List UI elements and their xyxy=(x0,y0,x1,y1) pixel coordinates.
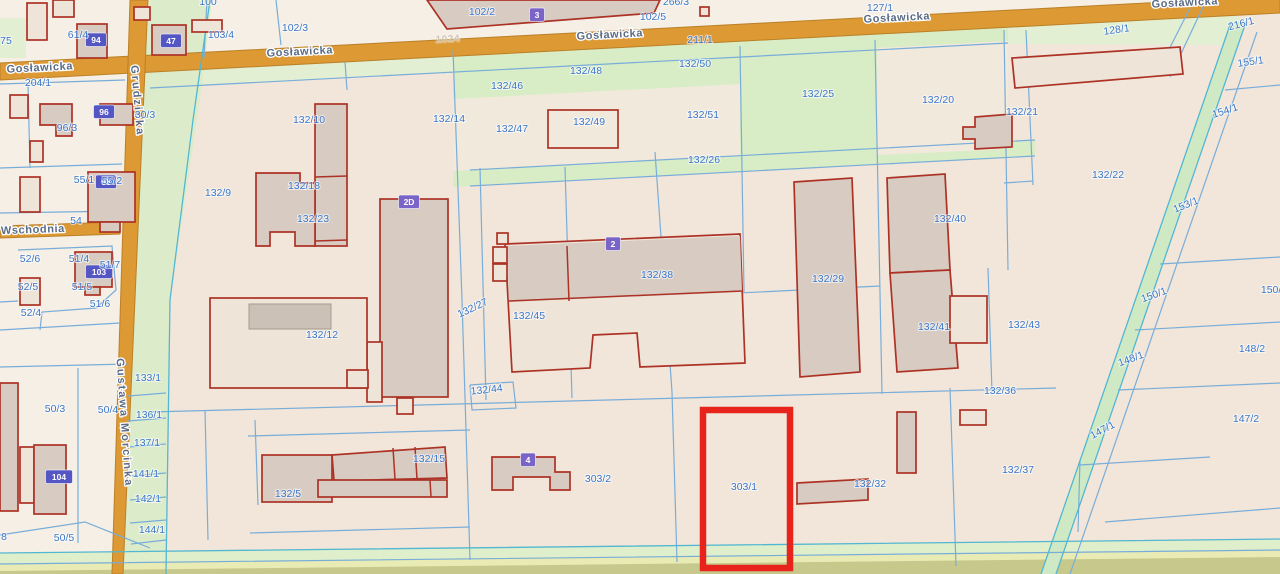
parcel-label-148-2: 148/2 xyxy=(1239,343,1265,355)
parcel-label-102-5: 102/5 xyxy=(640,11,666,23)
building xyxy=(10,95,28,118)
parcel-label-127-1: 127/1 xyxy=(867,2,893,14)
parcel-label-132-47: 132/47 xyxy=(496,123,528,135)
parcel-label-144-1: 144/1 xyxy=(139,524,165,536)
parcel-label-100: 100 xyxy=(199,0,217,8)
building-badge-number: 2D xyxy=(404,197,415,207)
building xyxy=(347,370,368,388)
parcel-label-132-25: 132/25 xyxy=(802,88,834,100)
parcel-label-137-1: 137/1 xyxy=(134,437,160,449)
parcel-label-51-4: 51/4 xyxy=(69,253,90,265)
parcel-label-132-49: 132/49 xyxy=(573,116,605,128)
building-badge-number: 2 xyxy=(611,239,616,249)
parcel-label-303-2: 303/2 xyxy=(585,473,611,485)
building xyxy=(20,447,34,503)
parcel-label-75: 75 xyxy=(0,35,12,47)
building xyxy=(134,7,150,20)
building-badge-number: 3 xyxy=(535,10,540,20)
parcel-label-132-36: 132/36 xyxy=(984,385,1016,397)
parcel-label-141-1: 141/1 xyxy=(133,468,159,480)
address-badge-number: 96 xyxy=(99,107,109,117)
building-badge-3: 3 xyxy=(530,8,545,22)
parcel-label-102-2: 102/2 xyxy=(469,6,495,18)
parcel-label-132-21: 132/21 xyxy=(1006,106,1038,118)
building-badge-2: 2 xyxy=(606,237,621,251)
parcel-label-303-1: 303/1 xyxy=(731,481,757,493)
parcel-label-55-1: 55/1 xyxy=(74,174,95,186)
parcel-label-132-40: 132/40 xyxy=(934,213,966,225)
parcel-label-132-14: 132/14 xyxy=(433,113,465,125)
parcel-label-133-1: 133/1 xyxy=(135,372,161,384)
address-badge-104: 104 xyxy=(46,470,73,484)
parcel-label-132-22: 132/22 xyxy=(1092,169,1124,181)
map-canvas[interactable]: 94479698103104322D4 GosławickaGosławicka… xyxy=(0,0,1280,574)
parcel-label-132-23: 132/23 xyxy=(297,213,329,225)
parcel-label-50-4: 50/4 xyxy=(98,404,119,416)
building xyxy=(318,480,447,497)
building xyxy=(53,0,74,17)
building xyxy=(497,233,508,244)
building xyxy=(700,7,709,16)
parcel-label-55-2: 55/2 xyxy=(102,175,123,187)
parcel-label-8: 8 xyxy=(1,531,7,543)
building xyxy=(20,177,40,212)
parcel-label-132-20: 132/20 xyxy=(922,94,954,106)
parcel-label-132-12: 132/12 xyxy=(306,329,338,341)
parcel-label-102-3: 102/3 xyxy=(282,22,308,34)
parcel-label-132-38: 132/38 xyxy=(641,269,673,281)
building xyxy=(950,296,987,343)
parcel-label-96-3: 96/3 xyxy=(57,122,78,134)
parcel-label-132-29: 132/29 xyxy=(812,273,844,285)
parcel-label-132-51: 132/51 xyxy=(687,109,719,121)
parcel-label-211-1: 211/1 xyxy=(687,34,713,46)
building xyxy=(0,383,18,511)
address-badge-number: 94 xyxy=(91,35,101,45)
address-badge-96: 96 xyxy=(94,105,115,119)
street-label-1024: 1024 xyxy=(435,33,460,45)
parcel-label-132-45: 132/45 xyxy=(513,310,545,322)
address-badge-47: 47 xyxy=(161,34,182,48)
parcel-label-132-48: 132/48 xyxy=(570,65,602,77)
parcel-label-132-46: 132/46 xyxy=(491,80,523,92)
parcel-label-132-9: 132/9 xyxy=(205,187,231,199)
parcel-label-51-6: 51/6 xyxy=(90,298,111,310)
map-viewport[interactable]: 94479698103104322D4 GosławickaGosławicka… xyxy=(0,0,1280,574)
address-badge-number: 104 xyxy=(52,472,66,482)
parcel-label-132-15: 132/15 xyxy=(413,453,445,465)
parcel-label-52-6: 52/6 xyxy=(20,253,41,265)
parcel-label-136-1: 136/1 xyxy=(136,409,162,421)
parcel-label-147-2: 147/2 xyxy=(1233,413,1259,425)
parcel-label-52-4: 52/4 xyxy=(21,307,42,319)
building-2d xyxy=(380,199,448,397)
building xyxy=(367,342,382,402)
parcel-label-142-1: 142/1 xyxy=(135,493,161,505)
building xyxy=(397,398,413,414)
street-label-wschodnia: Wschodnia xyxy=(1,223,66,237)
parcel-label-132-26: 132/26 xyxy=(688,154,720,166)
parcel-label-52-5: 52/5 xyxy=(18,281,39,293)
parcel-label-266-3: 266/3 xyxy=(663,0,689,8)
building xyxy=(493,247,507,263)
parcel-label-61-4: 61/4 xyxy=(68,29,89,41)
parcel-label-132-50: 132/50 xyxy=(679,58,711,70)
parcel-label-132-41: 132/41 xyxy=(918,321,950,333)
parcel-label-132-43: 132/43 xyxy=(1008,319,1040,331)
parcel-label-30-3: 30/3 xyxy=(135,109,156,121)
parcel-label-50-5: 50/5 xyxy=(54,532,75,544)
parcel-label-132-37: 132/37 xyxy=(1002,464,1034,476)
building xyxy=(30,141,43,162)
parcel-label-132-5: 132/5 xyxy=(275,488,301,500)
address-badge-number: 47 xyxy=(166,36,176,46)
building xyxy=(27,3,47,40)
parcel-label-132-18: 132/18 xyxy=(288,180,320,192)
building xyxy=(100,222,120,232)
parcel-label-204-1: 204/1 xyxy=(25,77,51,89)
parcel-label-54: 54 xyxy=(70,215,82,227)
parcel-label-51-5: 51/5 xyxy=(72,281,93,293)
building xyxy=(493,264,507,281)
parcel-label-103-4: 103/4 xyxy=(208,29,234,41)
parcel-label-132-10: 132/10 xyxy=(293,114,325,126)
parcel-label-51-7: 51/7 xyxy=(100,259,121,271)
building xyxy=(960,410,986,425)
building-inner xyxy=(249,304,331,329)
building xyxy=(897,412,916,473)
building-badge-number: 4 xyxy=(526,455,531,465)
parcel-label-50-3: 50/3 xyxy=(45,403,66,415)
parcel-label-150-2: 150/2 xyxy=(1261,284,1280,296)
building-badge-2d: 2D xyxy=(399,195,420,209)
address-badge-94: 94 xyxy=(86,33,107,47)
parcel-label-132-32: 132/32 xyxy=(854,478,886,490)
building-badge-4: 4 xyxy=(521,453,536,467)
